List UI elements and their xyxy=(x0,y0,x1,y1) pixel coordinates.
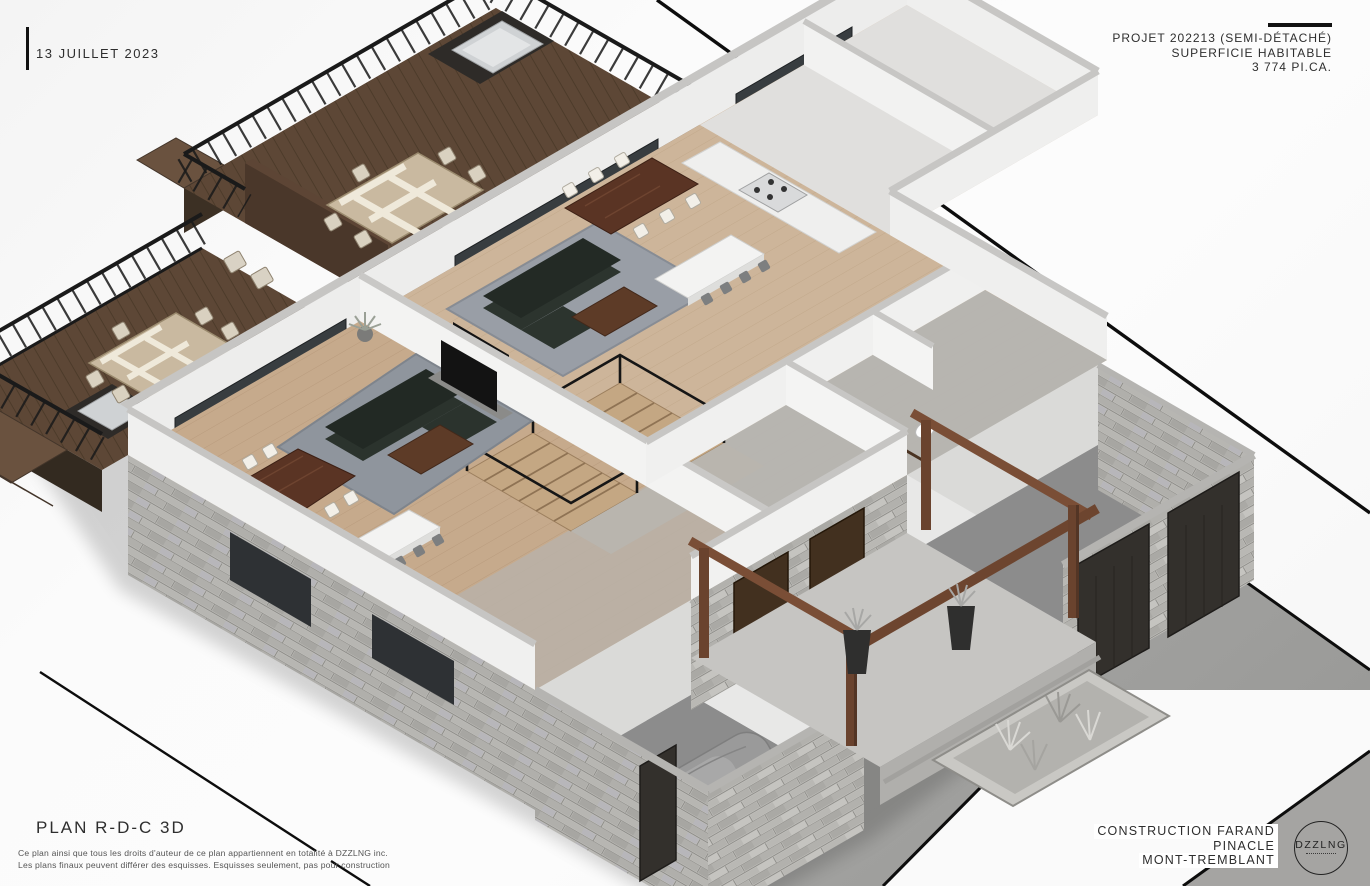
project-area-value: 3 774 PI.CA. xyxy=(1112,60,1332,75)
plan-title: PLAN R-D-C 3D xyxy=(36,818,186,838)
project-name: PINACLE xyxy=(1210,839,1278,854)
firm-info: CONSTRUCTION FARAND PINACLE MONT-TREMBLA… xyxy=(1094,824,1278,868)
date-accent-bar xyxy=(26,27,29,70)
disclaimer-line-2: Les plans finaux peuvent différer des es… xyxy=(18,860,390,872)
project-area-label: SUPERFICIE HABITABLE xyxy=(1112,46,1332,61)
drawing-sheet: 13 JUILLET 2023 PROJET 202213 (SEMI-DÉTA… xyxy=(0,0,1370,886)
project-city: MONT-TREMBLANT xyxy=(1139,853,1278,868)
disclaimer-line-1: Ce plan ainsi que tous les droits d'aute… xyxy=(18,848,390,860)
builder-name: CONSTRUCTION FARAND xyxy=(1094,824,1278,839)
logo-text: DZZLNG xyxy=(1295,839,1347,851)
date-label: 13 JUILLET 2023 xyxy=(36,46,159,61)
disclaimer: Ce plan ainsi que tous les droits d'aute… xyxy=(18,848,390,871)
floorplan-3d-rendering xyxy=(0,0,1370,886)
project-info: PROJET 202213 (SEMI-DÉTACHÉ) SUPERFICIE … xyxy=(1112,31,1332,75)
dzzlng-logo: DZZLNG xyxy=(1294,821,1348,875)
logo-subtext-rule xyxy=(1306,853,1336,854)
project-number: PROJET 202213 (SEMI-DÉTACHÉ) xyxy=(1112,31,1332,46)
project-accent-bar xyxy=(1268,23,1332,27)
